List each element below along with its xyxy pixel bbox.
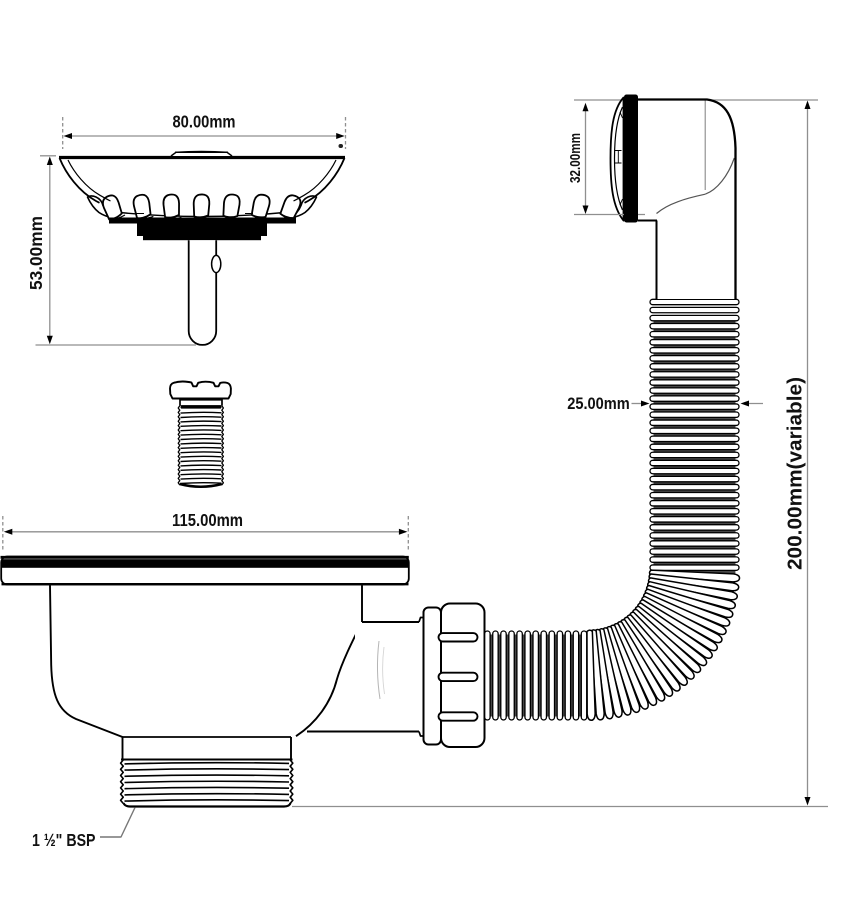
svg-text:80.00mm: 80.00mm — [173, 112, 236, 132]
svg-text:1 ½" BSP: 1 ½" BSP — [32, 830, 96, 850]
svg-text:115.00mm: 115.00mm — [172, 510, 243, 530]
svg-text:53.00mm: 53.00mm — [26, 216, 46, 290]
svg-text:32.00mm: 32.00mm — [567, 133, 584, 183]
svg-text:200.00mm(variable): 200.00mm(variable) — [785, 377, 807, 570]
svg-text:25.00mm: 25.00mm — [567, 394, 630, 413]
